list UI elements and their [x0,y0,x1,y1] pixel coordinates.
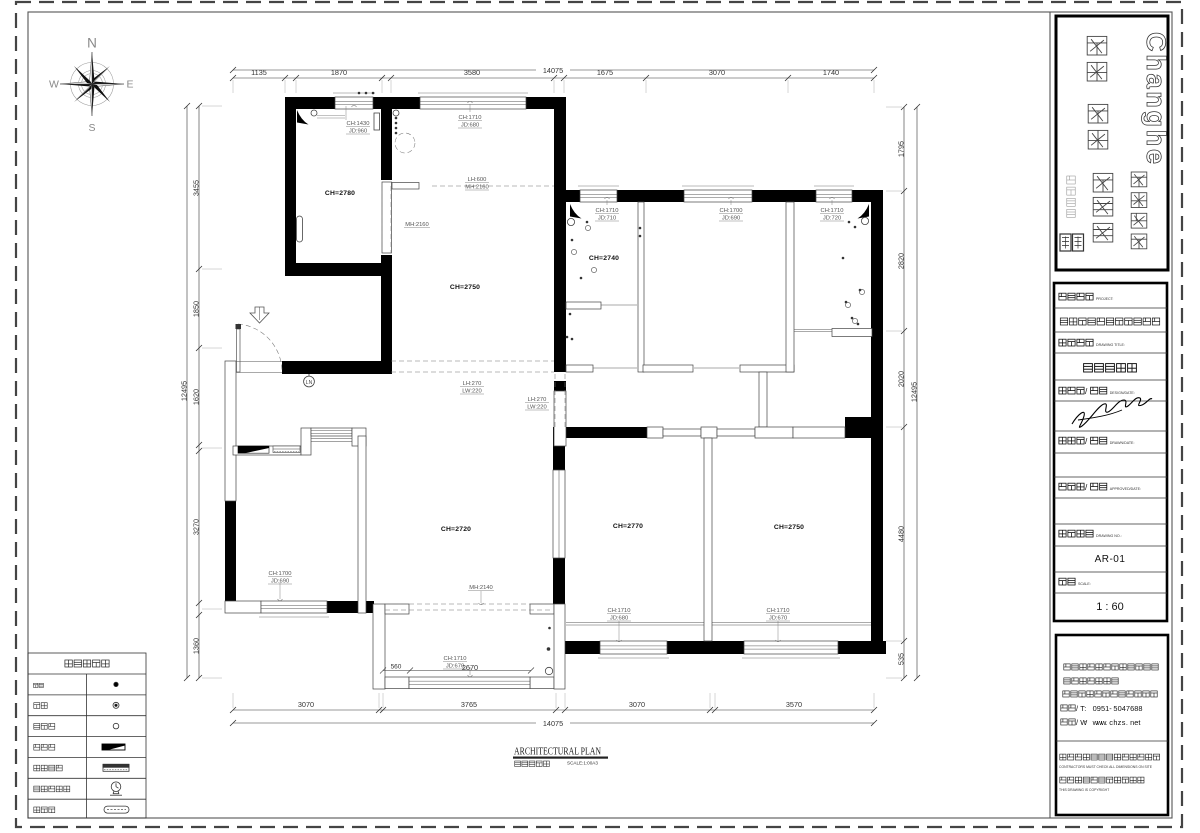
svg-text:1850: 1850 [192,301,201,317]
svg-text:CH:1710: CH:1710 [596,208,619,214]
svg-text:1620: 1620 [192,389,201,405]
svg-text:THIS DRAWING IS COPYRIGHT: THIS DRAWING IS COPYRIGHT [1059,788,1109,792]
svg-text:N: N [87,36,97,51]
svg-text:W: W [49,79,59,91]
svg-text:LN: LN [306,380,313,386]
svg-text:3070: 3070 [298,700,314,709]
svg-text:DESIGN/DATE:: DESIGN/DATE: [1110,391,1135,395]
svg-text:MH:2160: MH:2160 [465,185,489,191]
svg-text:CH:1710: CH:1710 [444,656,467,662]
svg-text:AR-01: AR-01 [1095,554,1126,565]
svg-text:560: 560 [391,664,402,671]
svg-text:LH:600: LH:600 [468,177,487,183]
svg-text:S: S [88,122,95,134]
svg-text:CH:1700: CH:1700 [269,571,292,577]
svg-text:1360: 1360 [192,638,201,654]
svg-text:2020: 2020 [897,371,906,387]
svg-text:MH:2140: MH:2140 [469,585,493,591]
svg-text:LW:220: LW:220 [527,405,546,411]
svg-text:535: 535 [897,653,906,665]
svg-text:ARCHITECTURAL PLAN: ARCHITECTURAL PLAN [514,747,601,758]
svg-text:MH:2160: MH:2160 [405,222,429,228]
svg-text:JD:690: JD:690 [722,216,740,222]
svg-text:JD:710: JD:710 [598,216,616,222]
svg-text:4480: 4480 [897,526,906,542]
svg-text:LW:220: LW:220 [462,389,481,395]
svg-text:CH:1710: CH:1710 [767,608,790,614]
svg-text:CH:1710: CH:1710 [821,208,844,214]
svg-text:DRAWING NO.:: DRAWING NO.: [1096,534,1122,538]
svg-text:8: 8 [1138,704,1142,713]
svg-text:JD:680: JD:680 [610,616,628,622]
svg-text:3070: 3070 [709,68,725,77]
svg-text:JD:720: JD:720 [823,216,841,222]
svg-text:CH=2780: CH=2780 [325,190,355,197]
svg-text:CH:1710: CH:1710 [608,608,631,614]
svg-text:CH=2750: CH=2750 [450,284,480,291]
svg-text:3765: 3765 [461,700,477,709]
svg-text:.: . [1105,718,1107,727]
svg-text:APPROVED/DATE:: APPROVED/DATE: [1110,487,1141,491]
svg-text:DRAWN/DATE:: DRAWN/DATE: [1110,441,1135,445]
svg-text:PROJECT:: PROJECT: [1096,297,1114,301]
svg-text:3455: 3455 [192,180,201,196]
svg-text:1740: 1740 [823,68,839,77]
svg-text:CH=2750: CH=2750 [774,524,804,531]
svg-text:12495: 12495 [180,381,189,401]
svg-text:CONTRACTORS MUST CHECK ALL DIM: CONTRACTORS MUST CHECK ALL DIMENSIONS ON… [1059,765,1153,769]
svg-text:3270: 3270 [192,519,201,535]
svg-text:CH=2770: CH=2770 [613,523,643,530]
svg-text:12495: 12495 [910,382,919,402]
svg-text:LH:270: LH:270 [528,397,547,403]
svg-text:CH:1700: CH:1700 [720,208,743,214]
svg-text:SCALE:1:00A3: SCALE:1:00A3 [567,761,598,766]
svg-text:t: t [1138,718,1140,727]
svg-text:3070: 3070 [629,700,645,709]
svg-text:JD:960: JD:960 [349,129,367,135]
svg-text:3580: 3580 [464,68,480,77]
svg-text:LH:270: LH:270 [463,381,482,387]
svg-text::: : [1084,718,1086,727]
svg-text:2820: 2820 [897,253,906,269]
svg-text::: : [1084,704,1086,713]
svg-text:SCALE:: SCALE: [1078,582,1091,586]
svg-text:.: . [1126,718,1128,727]
svg-text:DRAWING TITLE:: DRAWING TITLE: [1096,343,1125,347]
svg-text:E: E [126,79,133,91]
svg-text:14075: 14075 [543,719,563,728]
svg-text:CH=2740: CH=2740 [589,255,619,262]
svg-text:1795: 1795 [897,141,906,157]
svg-text:1 : 60: 1 : 60 [1096,601,1124,613]
svg-text:JD:690: JD:690 [271,579,289,585]
svg-text:1870: 1870 [331,68,347,77]
svg-text:1675: 1675 [597,68,613,77]
svg-text:2670: 2670 [462,663,478,672]
svg-text:14075: 14075 [543,66,563,75]
svg-text:CH=2720: CH=2720 [441,526,471,533]
svg-text:3570: 3570 [786,700,802,709]
svg-text:JD:670: JD:670 [769,616,787,622]
svg-text:JD:680: JD:680 [461,123,479,129]
svg-text:CH:1430: CH:1430 [347,121,370,127]
svg-text:CH:1710: CH:1710 [459,115,482,121]
svg-text:1135: 1135 [251,68,267,77]
